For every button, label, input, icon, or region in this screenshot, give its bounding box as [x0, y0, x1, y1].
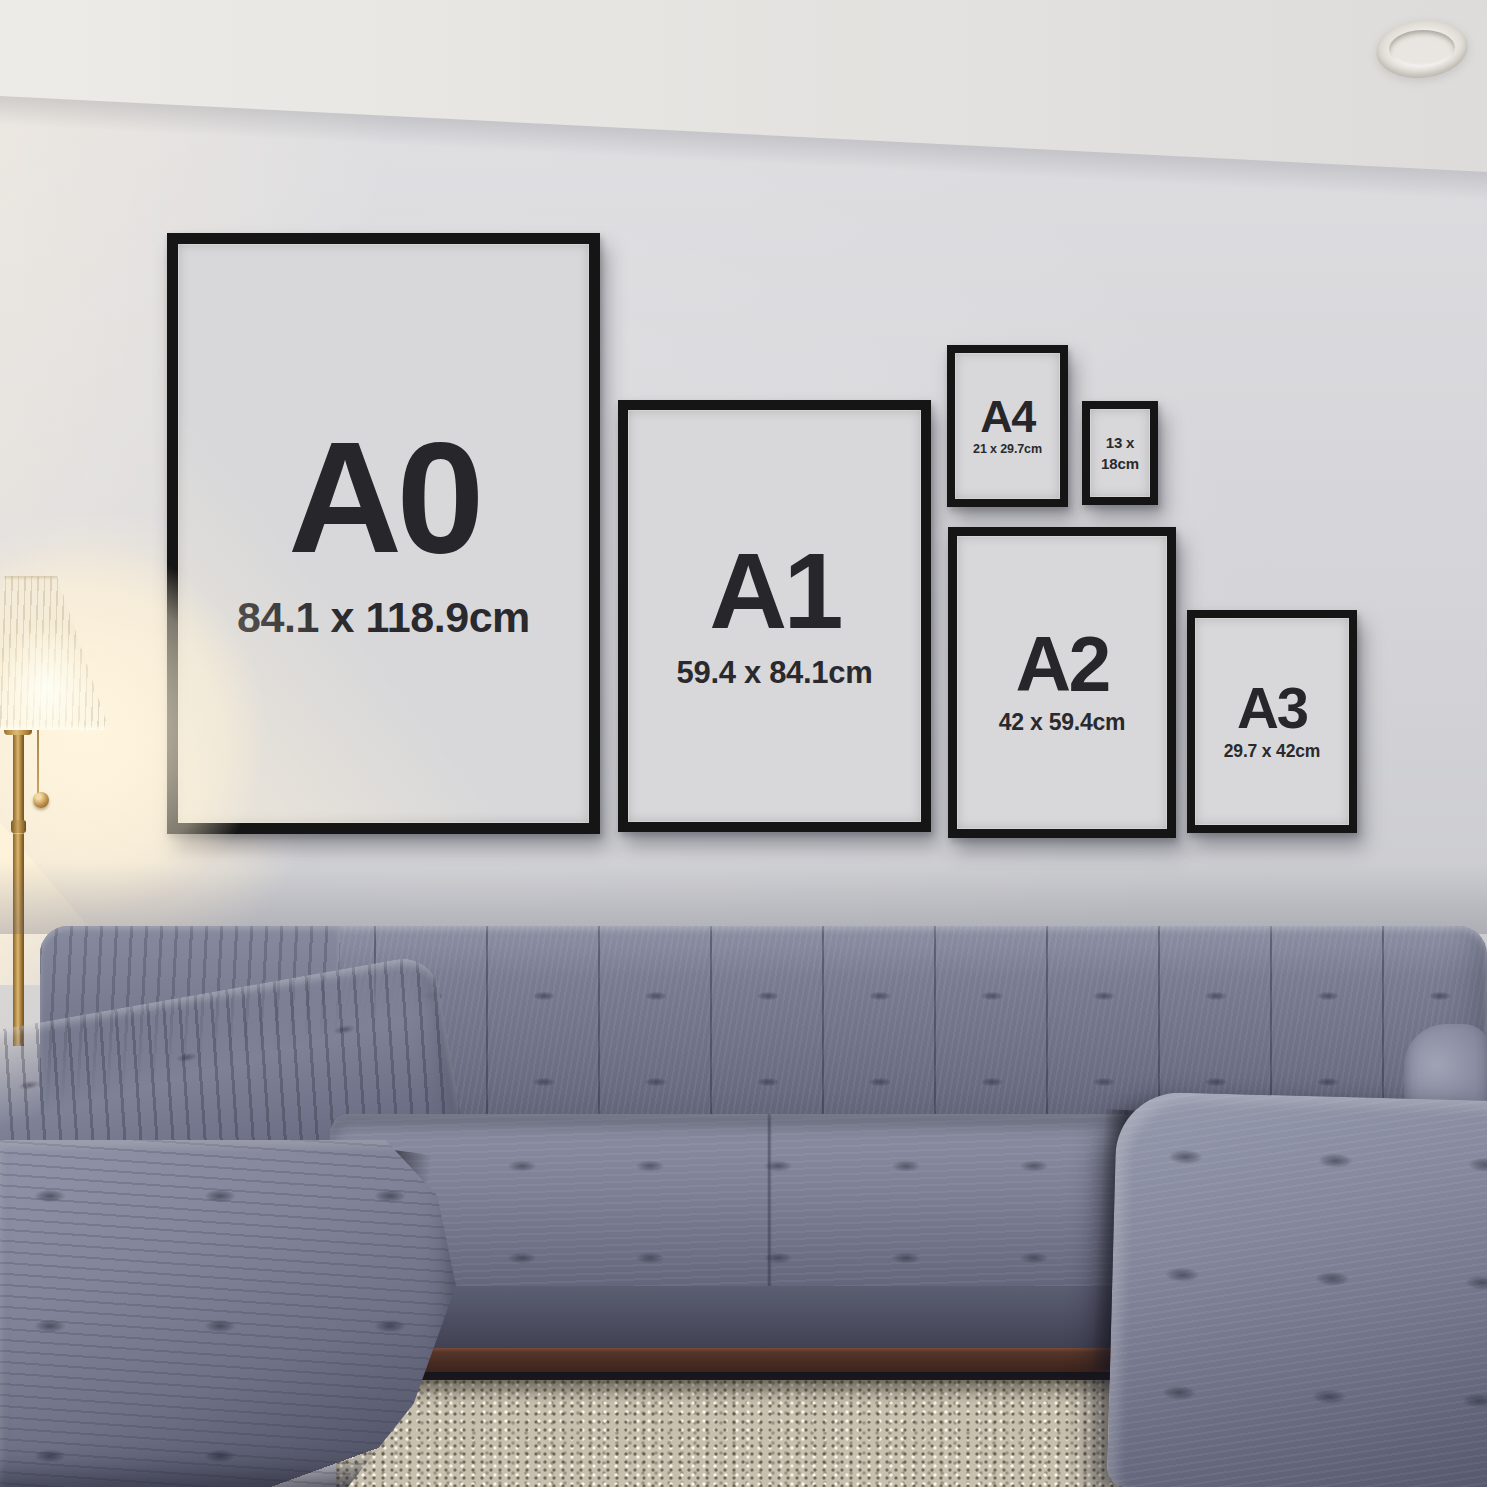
frame-a4-mat: A4 21 x 29.7cm [955, 353, 1060, 499]
lamp-pull-chain-ball [33, 792, 49, 808]
frame-a3-mat: A3 29.7 x 42cm [1195, 618, 1349, 825]
frame-a1-mat: A1 59.4 x 84.1cm [628, 410, 921, 822]
living-room-scene: A0 84.1 x 118.9cm A1 59.4 x 84.1cm A4 21… [0, 0, 1487, 1487]
poster-frame-a2: A2 42 x 59.4cm [948, 527, 1176, 838]
poster-frame-a3: A3 29.7 x 42cm [1187, 610, 1357, 833]
frame-13x18-dimensions: 13 x 18cm [1101, 432, 1139, 474]
poster-frame-13x18: 13 x 18cm [1082, 401, 1158, 505]
frame-13x18-dimensions-line1: 13 x [1101, 432, 1139, 453]
poster-frame-a4: A4 21 x 29.7cm [947, 345, 1068, 507]
ceiling-light-inner-ring [1388, 29, 1455, 68]
frame-a3-dimensions: 29.7 x 42cm [1224, 741, 1320, 762]
sofa-right-chaise [1107, 1091, 1487, 1487]
frame-a4-size-label: A4 [980, 396, 1034, 437]
frame-13x18-dimensions-line2: 18cm [1101, 453, 1139, 474]
frame-a4-dimensions: 21 x 29.7cm [973, 442, 1042, 456]
poster-frame-a1: A1 59.4 x 84.1cm [618, 400, 931, 832]
frame-a2-dimensions: 42 x 59.4cm [999, 709, 1126, 736]
frame-a1-size-label: A1 [709, 541, 840, 640]
frame-a2-size-label: A2 [1015, 629, 1108, 700]
frame-a3-size-label: A3 [1237, 681, 1307, 734]
sofa-wall-shadow [0, 862, 1487, 934]
frame-a2-mat: A2 42 x 59.4cm [957, 536, 1167, 829]
lamp-pull-chain [37, 728, 39, 796]
frame-13x18-mat: 13 x 18cm [1090, 409, 1150, 497]
lamp-stem-joint [11, 820, 26, 833]
frame-a1-dimensions: 59.4 x 84.1cm [677, 655, 873, 691]
